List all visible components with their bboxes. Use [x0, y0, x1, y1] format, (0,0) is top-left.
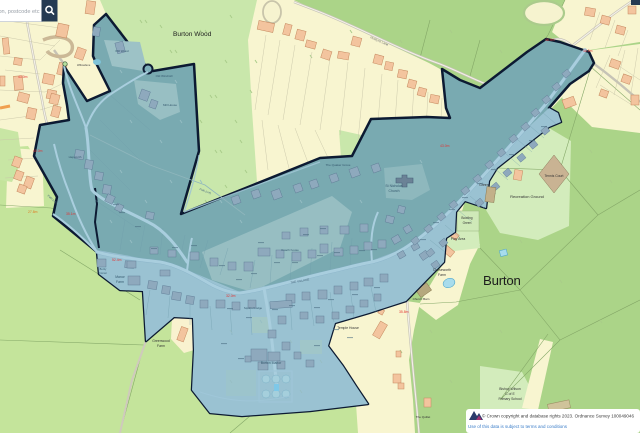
svg-text:cation, postcode etc: cation, postcode etc — [0, 9, 40, 15]
svg-text:Burton: Burton — [483, 273, 521, 288]
svg-text:Green: Green — [479, 183, 489, 187]
svg-text:Bishop Wilson: Bishop Wilson — [499, 387, 521, 391]
svg-text:43.0m: 43.0m — [18, 75, 28, 79]
svg-text:Cheseworth: Cheseworth — [433, 268, 451, 272]
svg-text:Play Area: Play Area — [451, 237, 466, 241]
svg-text:46.9m: 46.9m — [545, 38, 555, 42]
svg-text:35.1m: 35.1m — [66, 212, 76, 216]
svg-text:Tennis Court: Tennis Court — [544, 174, 563, 178]
svg-text:Hepworth: Hepworth — [69, 155, 82, 159]
svg-text:32.0m: 32.0m — [226, 294, 236, 298]
svg-text:Use of this data is subject to: Use of this data is subject to terms and… — [468, 424, 568, 429]
svg-text:The Quillet: The Quillet — [416, 415, 431, 419]
svg-text:Manor: Manor — [115, 275, 125, 279]
svg-text:Willowdene: Willowdene — [77, 63, 91, 67]
svg-text:Burton Manor: Burton Manor — [261, 361, 282, 365]
svg-text:Primary School: Primary School — [499, 397, 522, 401]
svg-text:Greenwood: Greenwood — [152, 339, 170, 343]
svg-text:Recreation Ground: Recreation Ground — [510, 194, 544, 199]
svg-text:Burity: Burity — [100, 267, 107, 271]
svg-text:Squirrel Lodge: Squirrel Lodge — [244, 306, 263, 310]
svg-text:Mill House: Mill House — [163, 103, 177, 107]
svg-text:C of E: C of E — [505, 392, 515, 396]
svg-text:Farm: Farm — [116, 280, 124, 284]
svg-text:Bowling: Bowling — [461, 216, 472, 220]
svg-text:40.0m: 40.0m — [33, 149, 43, 153]
svg-text:46.5m: 46.5m — [583, 49, 593, 53]
svg-text:Mill Wood: Mill Wood — [115, 49, 128, 53]
svg-text:Coach house: Coach house — [281, 248, 299, 252]
svg-text:Old Windmill: Old Windmill — [156, 74, 173, 78]
svg-text:Church Barn: Church Barn — [413, 297, 430, 301]
svg-text:© Crown copyright and database: © Crown copyright and database rights 20… — [482, 413, 634, 419]
svg-text:43.0m: 43.0m — [440, 144, 450, 148]
svg-text:Farm: Farm — [438, 273, 446, 277]
svg-text:St Nicholas: St Nicholas — [385, 184, 402, 188]
svg-text:Temple House: Temple House — [337, 326, 359, 330]
svg-text:27.8m: 27.8m — [28, 210, 38, 214]
svg-text:Farm: Farm — [157, 344, 165, 348]
svg-text:Church: Church — [389, 189, 400, 193]
svg-text:The Quaker Grove: The Quaker Grove — [326, 163, 351, 167]
svg-text:35.8m: 35.8m — [399, 310, 409, 314]
svg-text:Green: Green — [463, 221, 472, 225]
svg-text:Corner: Corner — [99, 271, 107, 275]
svg-text:Burton Wood: Burton Wood — [173, 31, 212, 38]
svg-text:52.4m: 52.4m — [112, 258, 122, 262]
